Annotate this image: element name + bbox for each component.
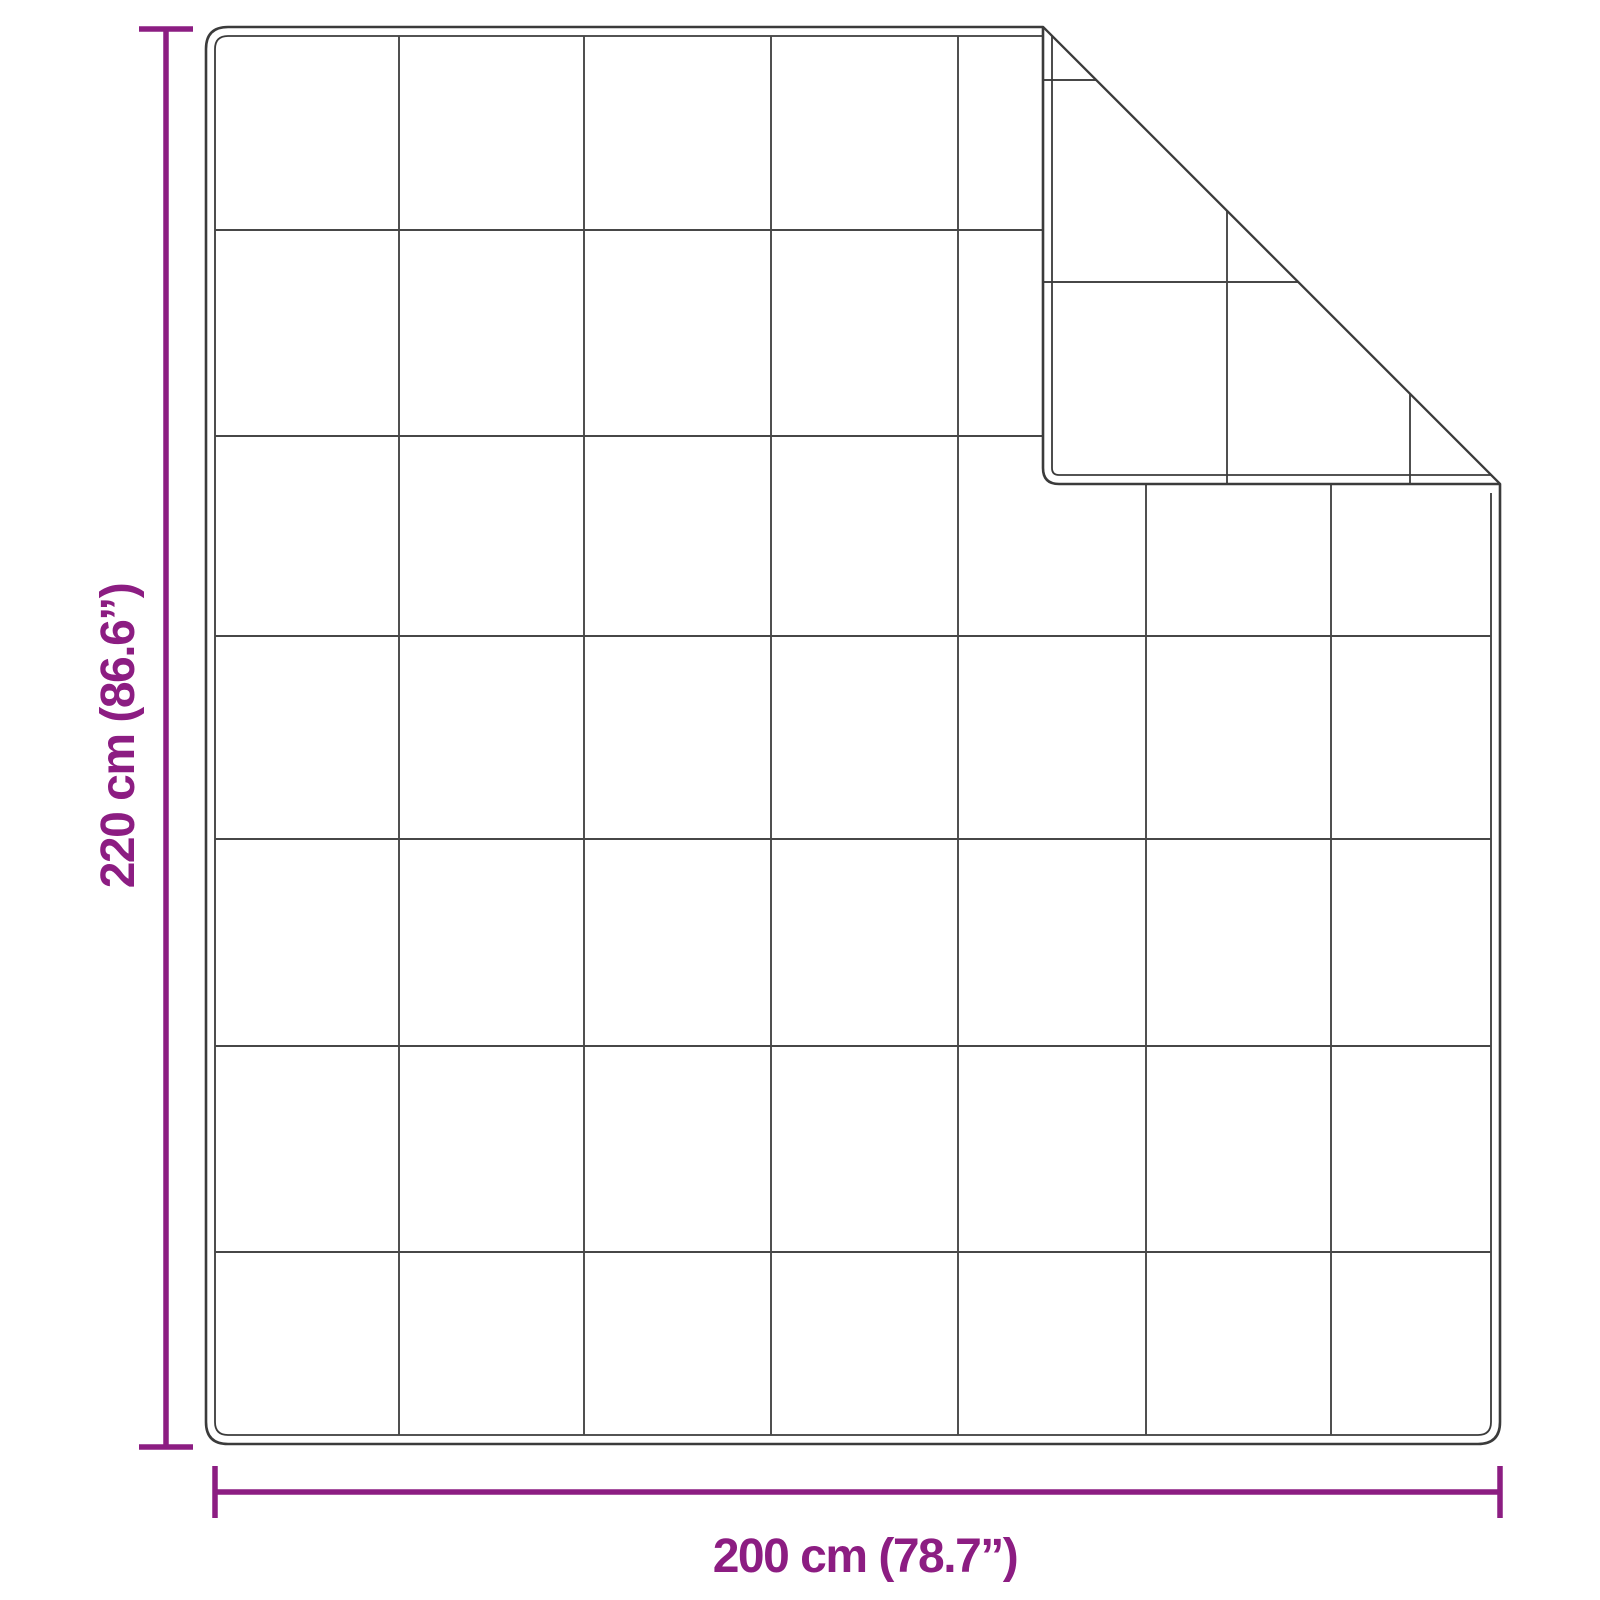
product-dimension-image: 220 cm (86.6”) 200 cm (78.7”) [0,0,1600,1600]
blanket-outline [206,27,1500,1444]
folded-corner-flap [1043,27,1500,484]
height-dimension-label: 220 cm (86.6”) [92,584,145,889]
blanket-dimension-diagram: 220 cm (86.6”) 200 cm (78.7”) [0,0,1600,1600]
width-dimension-label: 200 cm (78.7”) [713,1530,1018,1583]
blanket-body [206,27,1500,1444]
